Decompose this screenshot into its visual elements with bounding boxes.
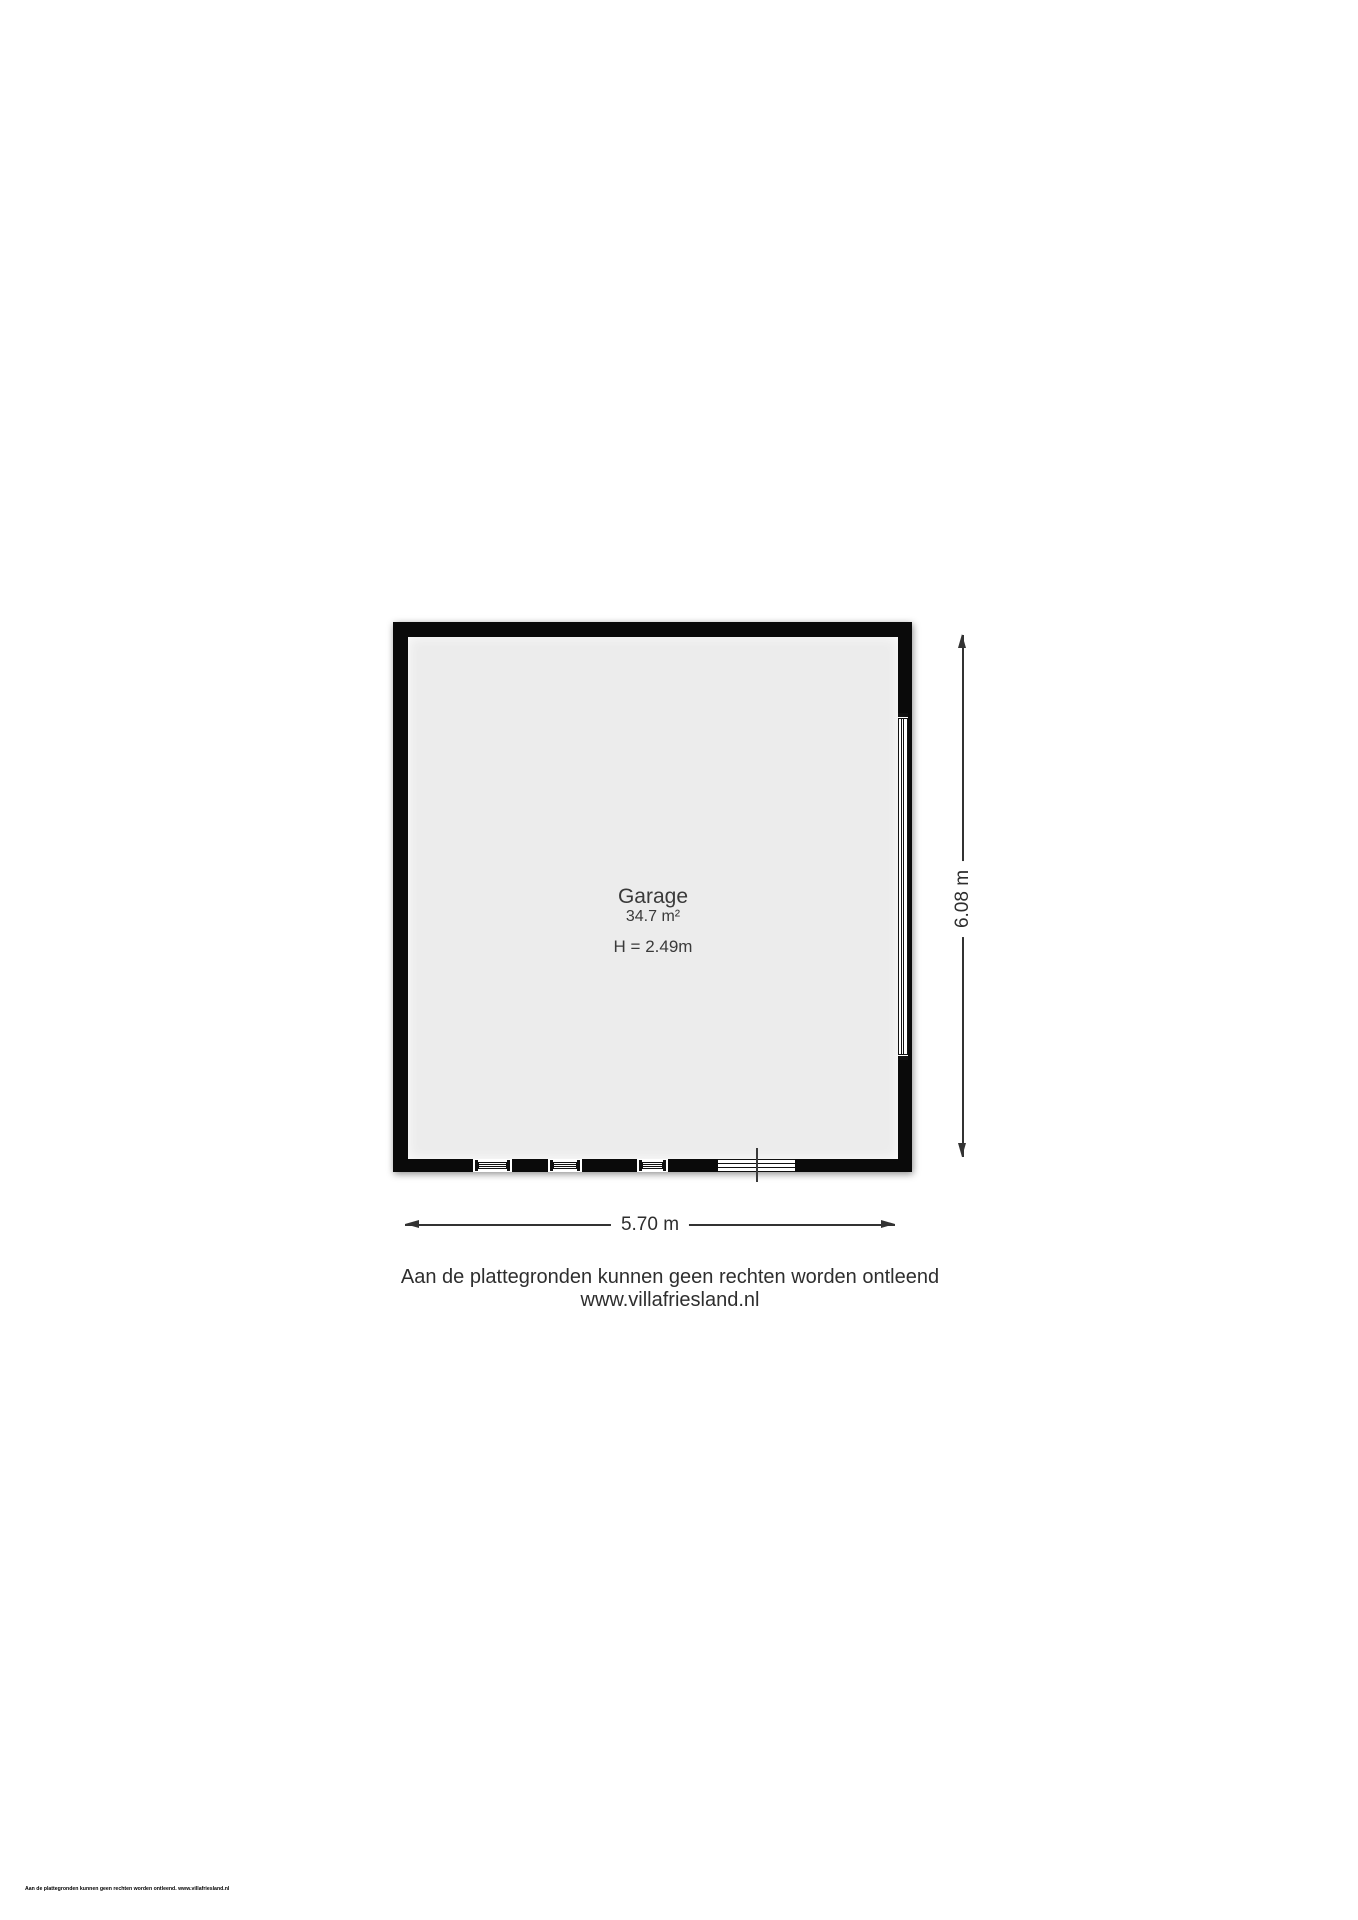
room-ceiling-height: H = 2.49m bbox=[408, 938, 898, 956]
window-glass-line bbox=[554, 1164, 576, 1167]
room-area: 34.7 m² bbox=[408, 908, 898, 926]
window-cap bbox=[507, 1160, 510, 1171]
disclaimer-line2: www.villafriesland.nl bbox=[401, 1289, 939, 1312]
window-cap bbox=[898, 1056, 908, 1060]
room-labels: Garage 34.7 m² H = 2.49m bbox=[408, 886, 898, 956]
dimension-arrow-left-icon bbox=[405, 1220, 419, 1228]
window-glass-line bbox=[479, 1164, 506, 1167]
window-frame bbox=[642, 1162, 663, 1169]
dimension-width-label: 5.70 m bbox=[611, 1214, 689, 1236]
window-frame bbox=[898, 718, 908, 1055]
window-bottom-3 bbox=[637, 1159, 668, 1172]
window-frame bbox=[553, 1162, 577, 1169]
fineprint: Aan de plattegronden kunnen geen rechten… bbox=[25, 1886, 229, 1892]
garage-door-center-line bbox=[756, 1148, 758, 1182]
dimension-arrow-right-icon bbox=[881, 1220, 895, 1228]
window-glass-line bbox=[901, 719, 904, 1054]
floorplan-canvas: Garage 34.7 m² H = 2.49m bbox=[0, 0, 1358, 1920]
window-cap bbox=[577, 1160, 580, 1171]
window-right bbox=[898, 713, 908, 1060]
dimension-arrow-down-icon bbox=[958, 1143, 966, 1157]
window-glass-line bbox=[643, 1164, 662, 1167]
disclaimer: Aan de plattegronden kunnen geen rechten… bbox=[401, 1266, 939, 1312]
dimension-arrow-up-icon bbox=[958, 634, 966, 648]
window-bottom-1 bbox=[473, 1159, 512, 1172]
window-frame bbox=[478, 1162, 507, 1169]
room-name: Garage bbox=[408, 886, 898, 908]
window-bottom-2 bbox=[548, 1159, 582, 1172]
disclaimer-line1: Aan de plattegronden kunnen geen rechten… bbox=[401, 1266, 939, 1289]
dimension-height-label: 6.08 m bbox=[952, 861, 974, 937]
window-cap bbox=[663, 1160, 666, 1171]
room-walls: Garage 34.7 m² H = 2.49m bbox=[393, 622, 912, 1172]
window-cap bbox=[898, 713, 908, 717]
